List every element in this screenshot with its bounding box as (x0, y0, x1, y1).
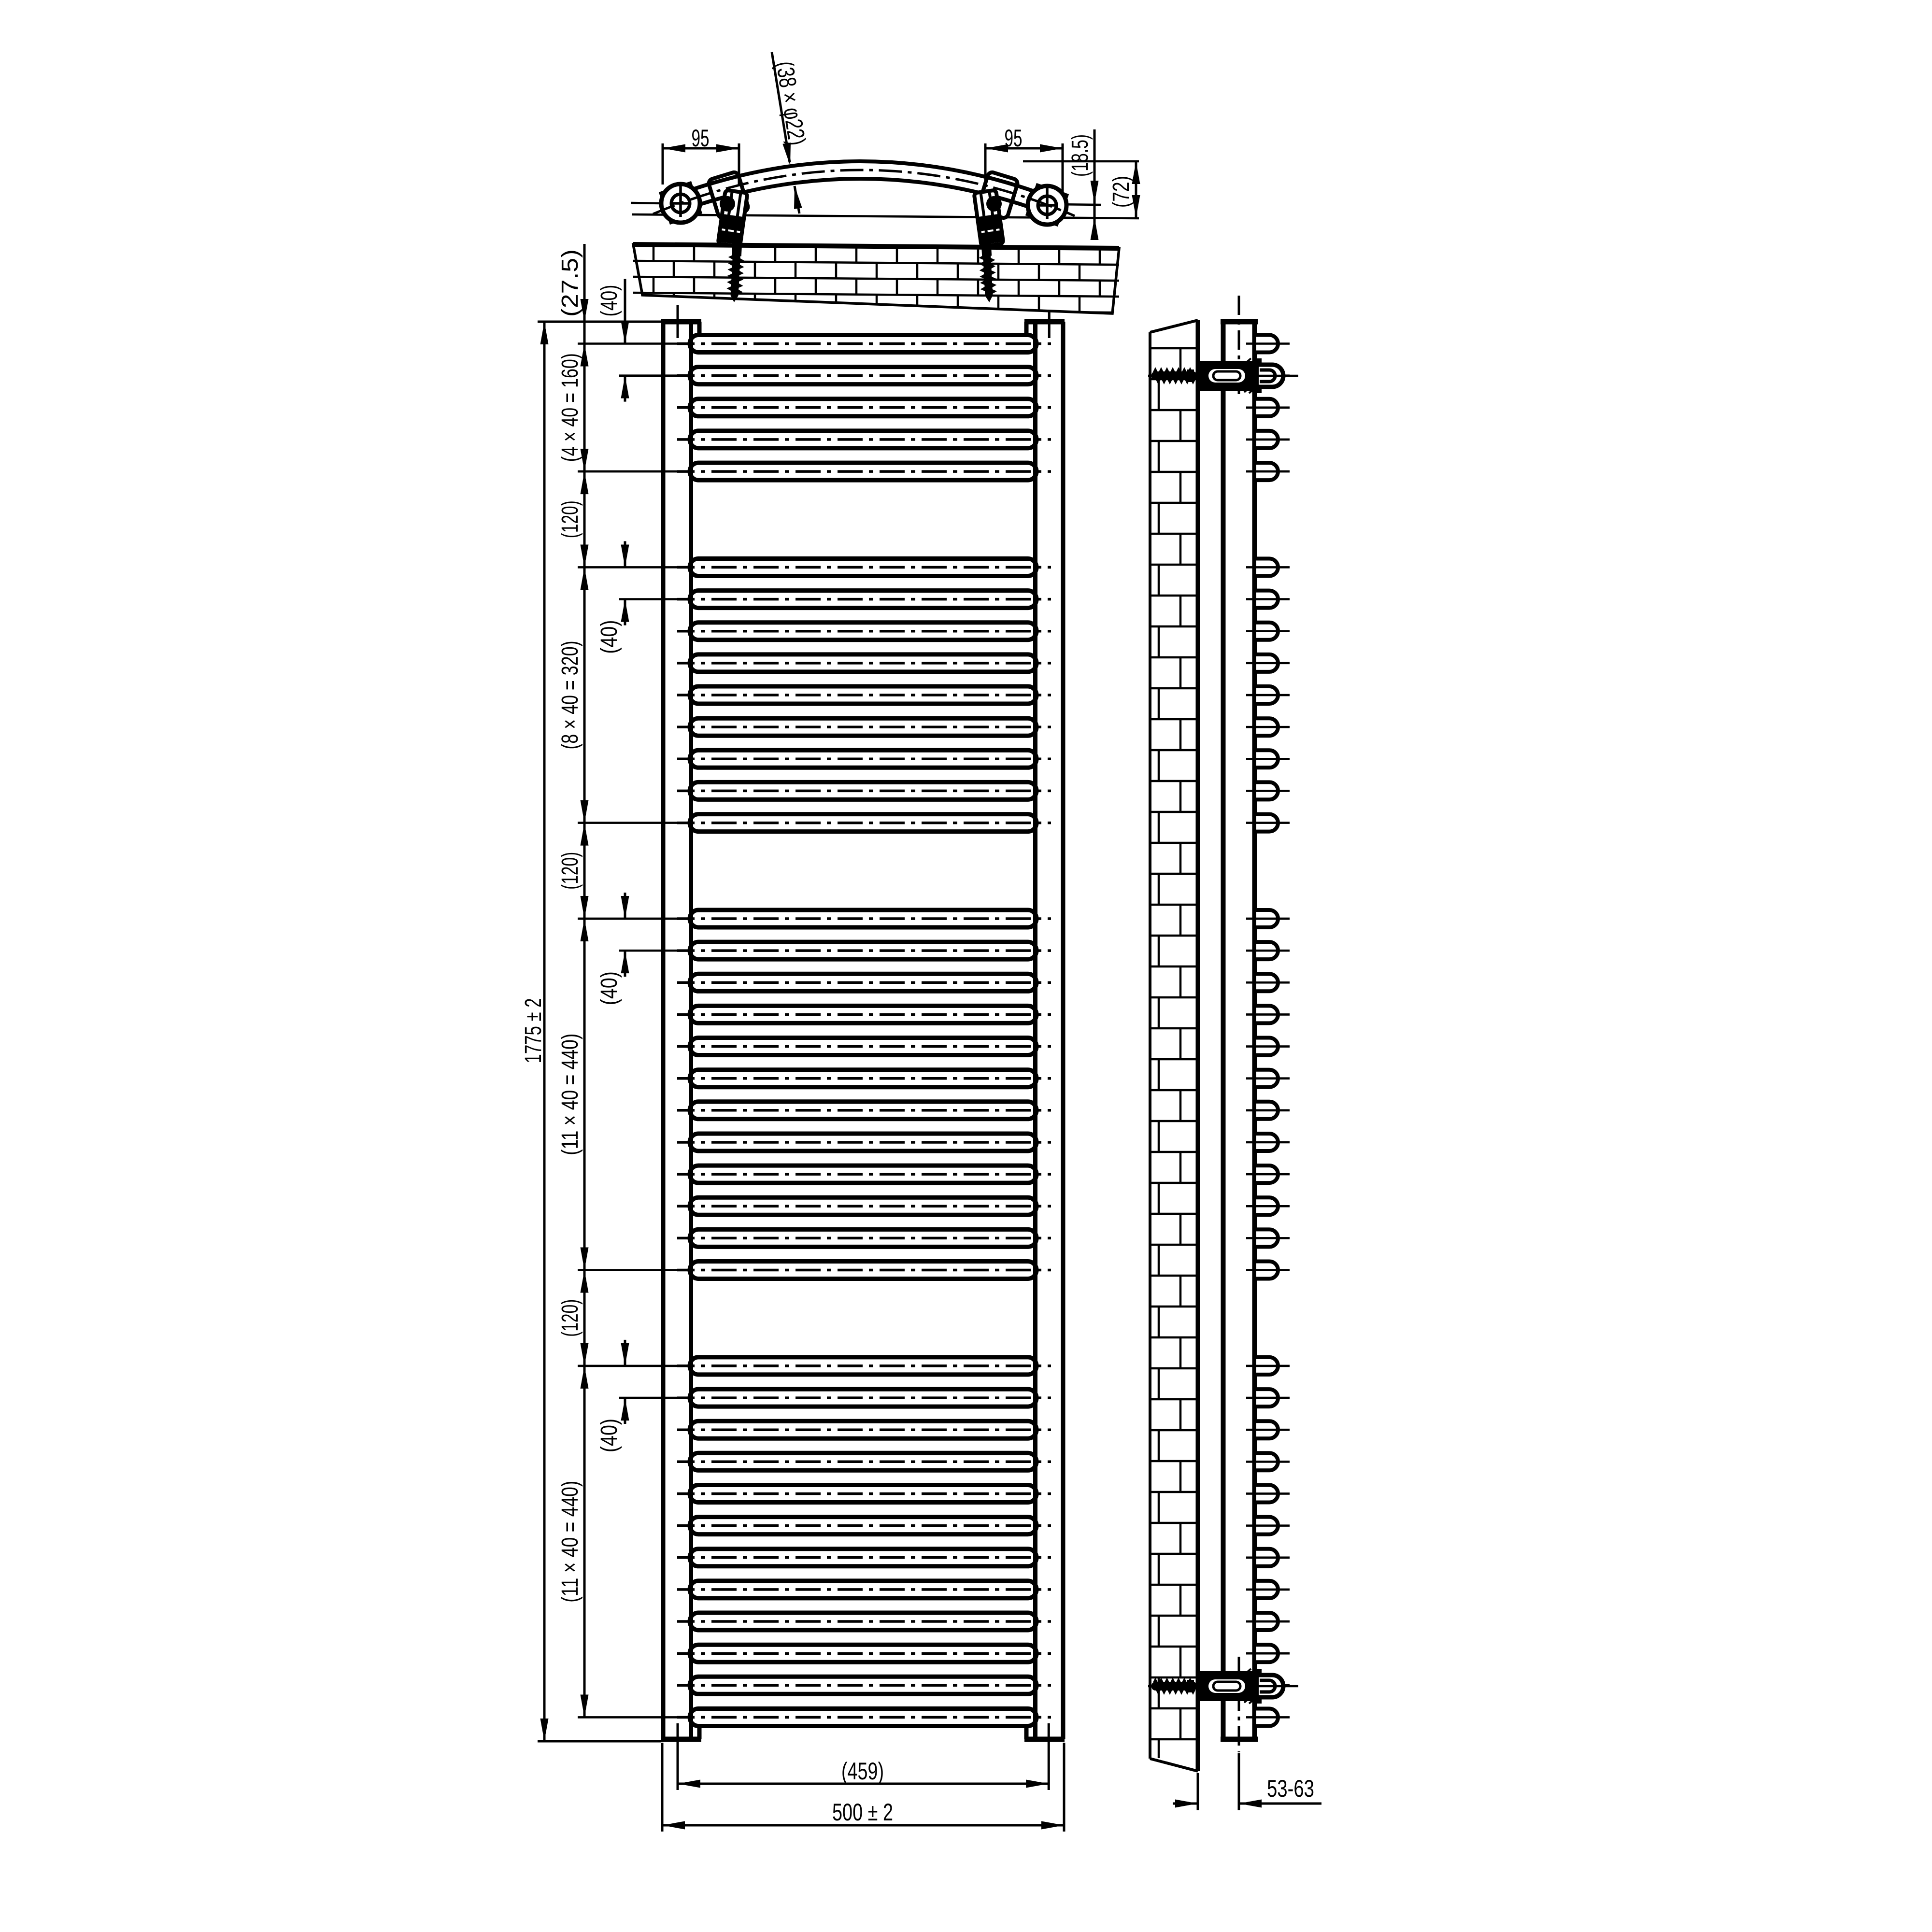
svg-text:(40): (40) (597, 971, 622, 1005)
svg-text:(459): (459) (841, 1758, 884, 1785)
svg-text:(11 × 40 = 440): (11 × 40 = 440) (557, 1034, 583, 1155)
svg-text:95: 95 (692, 125, 710, 152)
svg-text:(120): (120) (557, 852, 583, 890)
svg-text:500 ± 2: 500 ± 2 (832, 1799, 893, 1826)
svg-text:(72): (72) (1108, 176, 1134, 208)
svg-text:(8 × 40 = 320): (8 × 40 = 320) (557, 641, 583, 750)
svg-text:53-63: 53-63 (1267, 1775, 1314, 1802)
svg-text:(40): (40) (597, 1419, 622, 1452)
svg-text:(120): (120) (557, 500, 583, 538)
svg-text:(120): (120) (557, 1299, 583, 1337)
svg-text:(27.5): (27.5) (557, 249, 583, 317)
svg-text:(4 × 40 = 160): (4 × 40 = 160) (557, 353, 583, 462)
svg-text:(40): (40) (597, 285, 622, 317)
svg-text:95: 95 (1005, 125, 1023, 152)
svg-text:(11 × 40 = 440): (11 × 40 = 440) (557, 1481, 583, 1603)
svg-text:(18.5): (18.5) (1067, 134, 1093, 177)
svg-text:1775 ± 2: 1775 ± 2 (521, 998, 546, 1064)
svg-text:(40): (40) (597, 620, 622, 654)
